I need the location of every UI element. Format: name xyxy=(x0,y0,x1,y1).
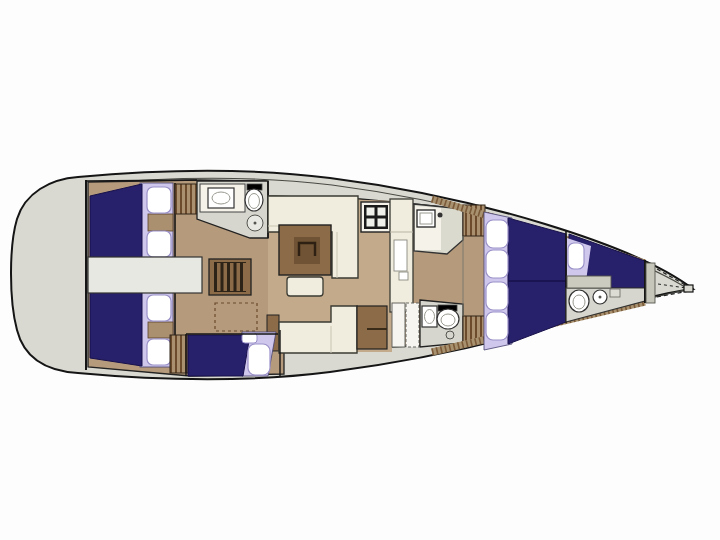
step-slat xyxy=(237,263,241,291)
aft-cabin-starboard xyxy=(90,292,175,370)
salon-bench xyxy=(287,277,323,296)
stove-burner xyxy=(367,208,375,216)
pillow xyxy=(486,312,508,340)
engine-room xyxy=(88,257,202,293)
berth-shelf xyxy=(148,214,173,231)
double-berth xyxy=(90,184,142,258)
forepeak-box xyxy=(646,263,655,303)
shower-tray xyxy=(610,289,620,297)
pillow xyxy=(147,339,171,365)
owner-cabin xyxy=(484,212,566,350)
stove-burner xyxy=(378,219,386,227)
pillow xyxy=(147,231,171,257)
head-cabinet xyxy=(406,303,419,347)
sink-drain-dot xyxy=(599,296,602,299)
toilet xyxy=(245,189,263,211)
chart-table xyxy=(357,306,387,349)
fridge-panel xyxy=(394,240,407,271)
shower-drain-dot xyxy=(254,222,257,225)
pillow xyxy=(147,187,171,213)
bow-fitting xyxy=(684,285,693,292)
cabin-top-wall xyxy=(86,180,197,181)
wardrobe-hatched xyxy=(175,184,198,214)
forward-head xyxy=(392,300,463,347)
bow-head-counter xyxy=(567,276,611,288)
yacht-floorplan xyxy=(0,0,720,540)
engine-space xyxy=(88,257,202,293)
step-slat xyxy=(243,263,247,291)
step-slat xyxy=(217,263,221,291)
companionway xyxy=(209,259,251,295)
floorplan-stage xyxy=(0,0,720,540)
pillow xyxy=(568,243,584,269)
double-berth xyxy=(90,292,142,366)
cabinet-tab xyxy=(399,272,408,280)
step-slat xyxy=(224,263,228,291)
stove-burner xyxy=(378,208,386,216)
faucet xyxy=(438,213,443,218)
single-berth xyxy=(188,335,250,376)
pillow xyxy=(486,282,508,310)
pillow xyxy=(248,344,270,375)
stove-burner xyxy=(367,219,375,227)
head-cabinet xyxy=(392,303,405,347)
berth-shelf xyxy=(148,322,173,338)
pillow xyxy=(486,220,508,248)
pillow xyxy=(486,250,508,278)
pillow xyxy=(147,295,171,321)
bow-cabin xyxy=(566,234,645,322)
step-slat xyxy=(230,263,234,291)
